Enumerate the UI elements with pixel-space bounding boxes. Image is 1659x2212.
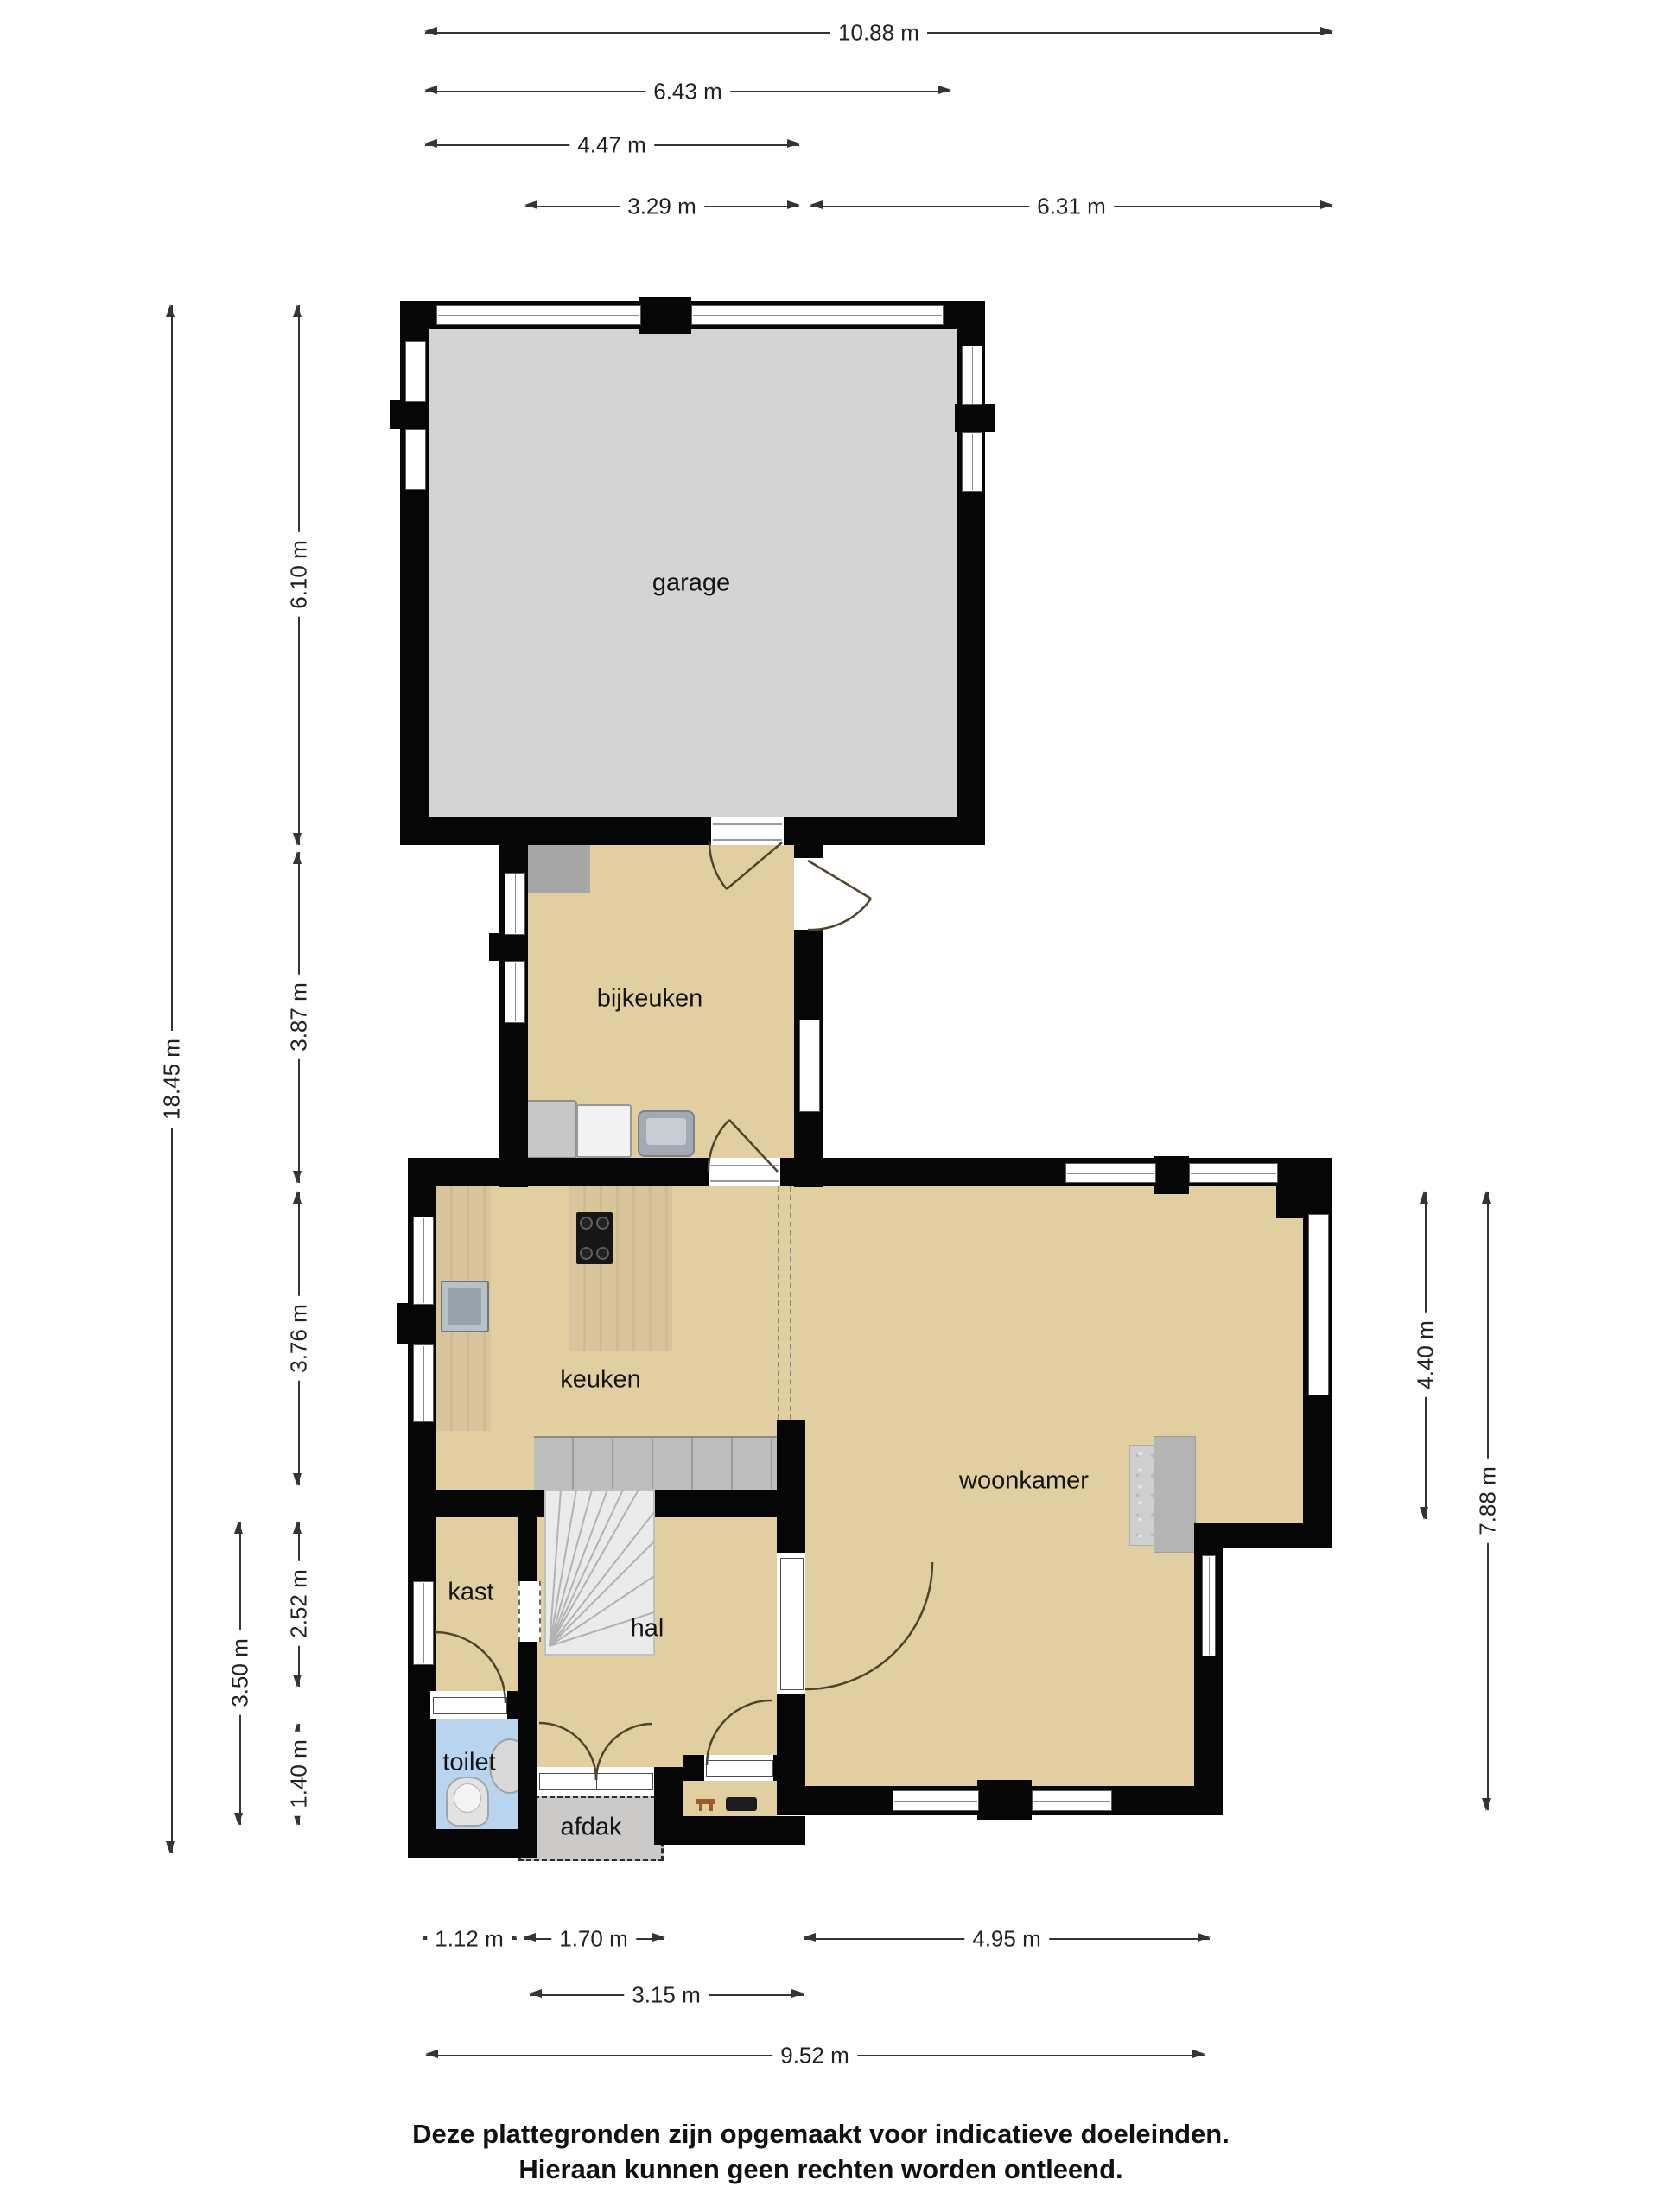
shoes-icon bbox=[726, 1797, 757, 1811]
disclaimer-line-2: Hieraan kunnen geen rechten worden ontle… bbox=[0, 2154, 1642, 2185]
woonkamer-floor-lower bbox=[805, 1523, 1194, 1786]
room-label-bijkeuken: bijkeuken bbox=[597, 985, 703, 1014]
kitchen-island bbox=[569, 1186, 672, 1351]
dimension-label: 3.29 m bbox=[620, 194, 704, 220]
wall bbox=[654, 1816, 805, 1845]
front-door-leaf bbox=[539, 1773, 598, 1790]
room-label-woonkamer: woonkamer bbox=[959, 1467, 1089, 1496]
dryer-icon bbox=[576, 1104, 632, 1158]
window bbox=[1308, 1214, 1329, 1395]
window bbox=[436, 305, 641, 325]
dimension-label: 4.40 m bbox=[1413, 1313, 1440, 1397]
shoe-bench-leg bbox=[709, 1804, 713, 1811]
window bbox=[405, 341, 426, 402]
washer-icon bbox=[522, 1100, 577, 1159]
window bbox=[1065, 1163, 1156, 1183]
window bbox=[1189, 1163, 1278, 1183]
wall bbox=[654, 1490, 777, 1517]
window bbox=[799, 1020, 820, 1112]
wall bbox=[408, 1829, 537, 1858]
wall bbox=[777, 1420, 805, 1553]
dimension-label: 9.52 m bbox=[772, 2043, 857, 2069]
window bbox=[505, 961, 525, 1023]
room-label-afdak: afdak bbox=[561, 1814, 622, 1842]
fireplace-icon bbox=[1154, 1436, 1196, 1553]
window bbox=[1202, 1555, 1216, 1656]
window bbox=[413, 1344, 434, 1422]
dimension-label: 3.15 m bbox=[624, 1982, 709, 2009]
door-opening bbox=[794, 858, 823, 930]
dimension-label: 4.47 m bbox=[569, 132, 654, 159]
window bbox=[962, 432, 982, 492]
dimension-label: 10.88 m bbox=[830, 20, 927, 47]
kitchen-counter bbox=[534, 1436, 777, 1491]
dimension-label: 1.70 m bbox=[551, 1926, 636, 1953]
dimension-label: 18.45 m bbox=[159, 1031, 186, 1128]
window bbox=[691, 305, 944, 325]
door-leaf bbox=[706, 1760, 773, 1777]
wall-pier bbox=[1154, 1156, 1189, 1194]
wall-pier bbox=[397, 1303, 436, 1344]
floorplan-canvas: garage bijkeuken keuken woonkamer kast h… bbox=[0, 0, 1659, 2212]
wall-pier bbox=[955, 404, 995, 432]
shoe-bench-leg bbox=[699, 1804, 702, 1811]
room-label-kast: kast bbox=[448, 1579, 493, 1607]
room-label-garage: garage bbox=[652, 569, 730, 598]
window bbox=[405, 429, 426, 490]
wall bbox=[518, 1517, 537, 1581]
window bbox=[1032, 1790, 1112, 1811]
wall-stub bbox=[654, 1767, 683, 1816]
wall bbox=[777, 1694, 805, 1786]
door-sill bbox=[710, 1165, 779, 1182]
window bbox=[893, 1790, 979, 1811]
wall-pier bbox=[639, 297, 691, 334]
door-leaf bbox=[780, 1558, 804, 1690]
dimension-label: 6.31 m bbox=[1029, 194, 1114, 220]
cooktop-icon bbox=[576, 1212, 613, 1264]
room-label-hal: hal bbox=[631, 1615, 664, 1643]
dimension-label: 3.76 m bbox=[286, 1296, 313, 1381]
dimension-label: 1.40 m bbox=[286, 1732, 313, 1816]
dimension-label: 3.50 m bbox=[227, 1630, 254, 1715]
room-label-toilet: toilet bbox=[442, 1749, 495, 1777]
window bbox=[962, 346, 982, 405]
door-sill bbox=[713, 823, 782, 841]
door-leaf bbox=[433, 1697, 507, 1714]
open-passage-dashed bbox=[518, 1581, 541, 1642]
fireplace-hearth bbox=[1129, 1445, 1155, 1546]
wall-pier bbox=[390, 400, 429, 429]
wall-pier bbox=[489, 933, 528, 961]
dimension-label: 4.95 m bbox=[964, 1926, 1049, 1953]
wall bbox=[400, 817, 985, 845]
open-passage-dashed bbox=[778, 1186, 791, 1420]
window bbox=[413, 1581, 434, 1665]
dimension-label: 1.12 m bbox=[427, 1926, 512, 1953]
window bbox=[505, 873, 525, 935]
dimension-label: 7.88 m bbox=[1475, 1459, 1502, 1543]
toilet-fixture-icon bbox=[446, 1777, 489, 1827]
dimension-label: 6.43 m bbox=[645, 79, 730, 105]
dimension-label: 2.52 m bbox=[286, 1561, 313, 1646]
dimension-label: 6.10 m bbox=[286, 532, 313, 617]
kitchen-sink-icon bbox=[441, 1281, 489, 1332]
utility-sink-icon bbox=[638, 1110, 695, 1157]
front-door-leaf bbox=[596, 1773, 653, 1790]
wall-pier bbox=[977, 1780, 1032, 1820]
wall bbox=[408, 1490, 545, 1517]
disclaimer-line-1: Deze plattegronden zijn opgemaakt voor i… bbox=[0, 2119, 1642, 2150]
window bbox=[413, 1217, 434, 1305]
dimension-label: 3.87 m bbox=[286, 975, 313, 1059]
room-label-keuken: keuken bbox=[560, 1366, 641, 1395]
wall bbox=[518, 1642, 537, 1829]
